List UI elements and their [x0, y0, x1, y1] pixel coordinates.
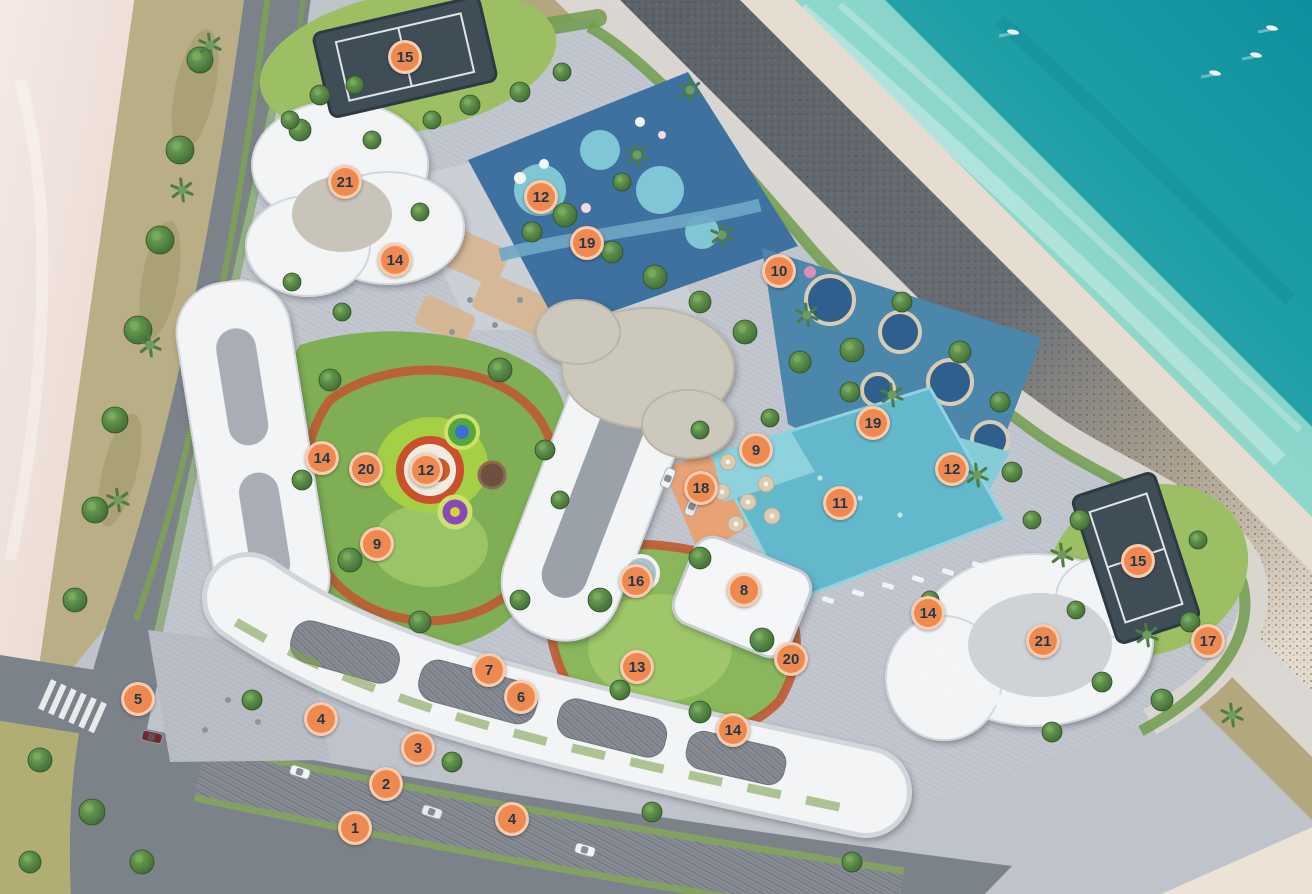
map-marker-20b[interactable]: 20	[774, 642, 808, 676]
map-marker-number: 14	[314, 451, 331, 466]
map-marker-3[interactable]: 3	[401, 731, 435, 765]
map-marker-number: 4	[317, 712, 325, 727]
map-marker-number: 21	[1035, 634, 1052, 649]
map-marker-number: 6	[517, 690, 525, 705]
map-marker-number: 2	[382, 777, 390, 792]
map-marker-14c[interactable]: 14	[716, 713, 750, 747]
map-marker-14b[interactable]: 14	[305, 441, 339, 475]
map-marker-4b[interactable]: 4	[495, 802, 529, 836]
map-marker-11[interactable]: 11	[823, 486, 857, 520]
site-plan: 1 2 3 4 4 5 6 7 8 9 9 10 11 12 12 1	[0, 0, 1312, 894]
map-marker-number: 8	[740, 583, 748, 598]
map-marker-21a[interactable]: 21	[328, 165, 362, 199]
map-marker-12a[interactable]: 12	[524, 180, 558, 214]
map-marker-15a[interactable]: 15	[388, 40, 422, 74]
map-marker-number: 15	[1130, 554, 1147, 569]
map-marker-number: 9	[373, 537, 381, 552]
map-marker-number: 17	[1200, 634, 1217, 649]
map-marker-number: 14	[920, 606, 937, 621]
map-marker-13[interactable]: 13	[620, 650, 654, 684]
map-marker-number: 9	[752, 443, 760, 458]
map-marker-number: 19	[865, 416, 882, 431]
map-marker-21b[interactable]: 21	[1026, 624, 1060, 658]
map-marker-1[interactable]: 1	[338, 811, 372, 845]
map-marker-14a[interactable]: 14	[378, 243, 412, 277]
map-marker-19a[interactable]: 19	[570, 226, 604, 260]
map-marker-7[interactable]: 7	[472, 653, 506, 687]
map-marker-15b[interactable]: 15	[1121, 544, 1155, 578]
map-marker-10[interactable]: 10	[762, 254, 796, 288]
map-marker-18[interactable]: 18	[684, 471, 718, 505]
map-marker-number: 20	[358, 462, 375, 477]
map-marker-2[interactable]: 2	[369, 767, 403, 801]
map-marker-12c[interactable]: 12	[935, 452, 969, 486]
map-marker-number: 12	[533, 190, 550, 205]
map-marker-9a[interactable]: 9	[360, 527, 394, 561]
map-marker-number: 5	[134, 692, 142, 707]
map-marker-number: 20	[783, 652, 800, 667]
map-marker-number: 14	[387, 253, 404, 268]
map-marker-14d[interactable]: 14	[911, 596, 945, 630]
markers-layer: 1 2 3 4 4 5 6 7 8 9 9 10 11 12 12 1	[0, 0, 1312, 894]
map-marker-19b[interactable]: 19	[856, 406, 890, 440]
map-marker-12b[interactable]: 12	[409, 453, 443, 487]
map-marker-number: 10	[771, 264, 788, 279]
map-marker-number: 12	[944, 462, 961, 477]
map-marker-17[interactable]: 17	[1191, 624, 1225, 658]
map-marker-number: 19	[579, 236, 596, 251]
map-marker-number: 18	[693, 481, 710, 496]
map-marker-4a[interactable]: 4	[304, 702, 338, 736]
map-marker-number: 11	[832, 496, 848, 511]
map-marker-number: 7	[485, 663, 493, 678]
map-marker-number: 21	[337, 175, 354, 190]
map-marker-9b[interactable]: 9	[739, 433, 773, 467]
map-marker-20a[interactable]: 20	[349, 452, 383, 486]
map-marker-number: 16	[628, 574, 645, 589]
map-marker-number: 15	[397, 50, 414, 65]
map-marker-16[interactable]: 16	[619, 564, 653, 598]
map-marker-6[interactable]: 6	[504, 680, 538, 714]
map-marker-number: 13	[629, 660, 646, 675]
map-marker-number: 1	[351, 821, 359, 836]
map-marker-8[interactable]: 8	[727, 573, 761, 607]
map-marker-5[interactable]: 5	[121, 682, 155, 716]
map-marker-number: 12	[418, 463, 435, 478]
map-marker-number: 4	[508, 812, 516, 827]
map-marker-number: 14	[725, 723, 742, 738]
map-marker-number: 3	[414, 741, 422, 756]
